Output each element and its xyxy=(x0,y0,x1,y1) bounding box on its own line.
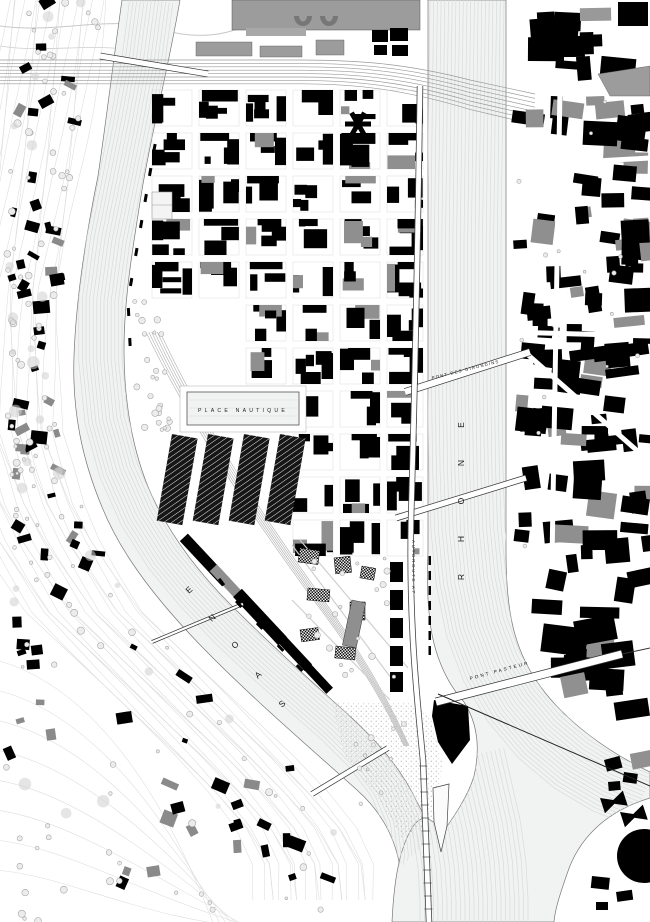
map-canvas: RHONESAONE PLACE NAUTIQUE PONT DES GIRON… xyxy=(0,0,650,922)
svg-text:O: O xyxy=(456,497,466,504)
place-nautique-label: PLACE NAUTIQUE xyxy=(198,408,288,414)
svg-text:R: R xyxy=(456,574,466,580)
autoroute-a7-label: AUTOROUTE A7 xyxy=(411,540,416,595)
svg-text:N: N xyxy=(456,460,466,466)
svg-text:E: E xyxy=(456,422,466,428)
map-stage: RHONESAONE PLACE NAUTIQUE PONT DES GIRON… xyxy=(0,0,650,922)
svg-text:H: H xyxy=(456,536,466,542)
